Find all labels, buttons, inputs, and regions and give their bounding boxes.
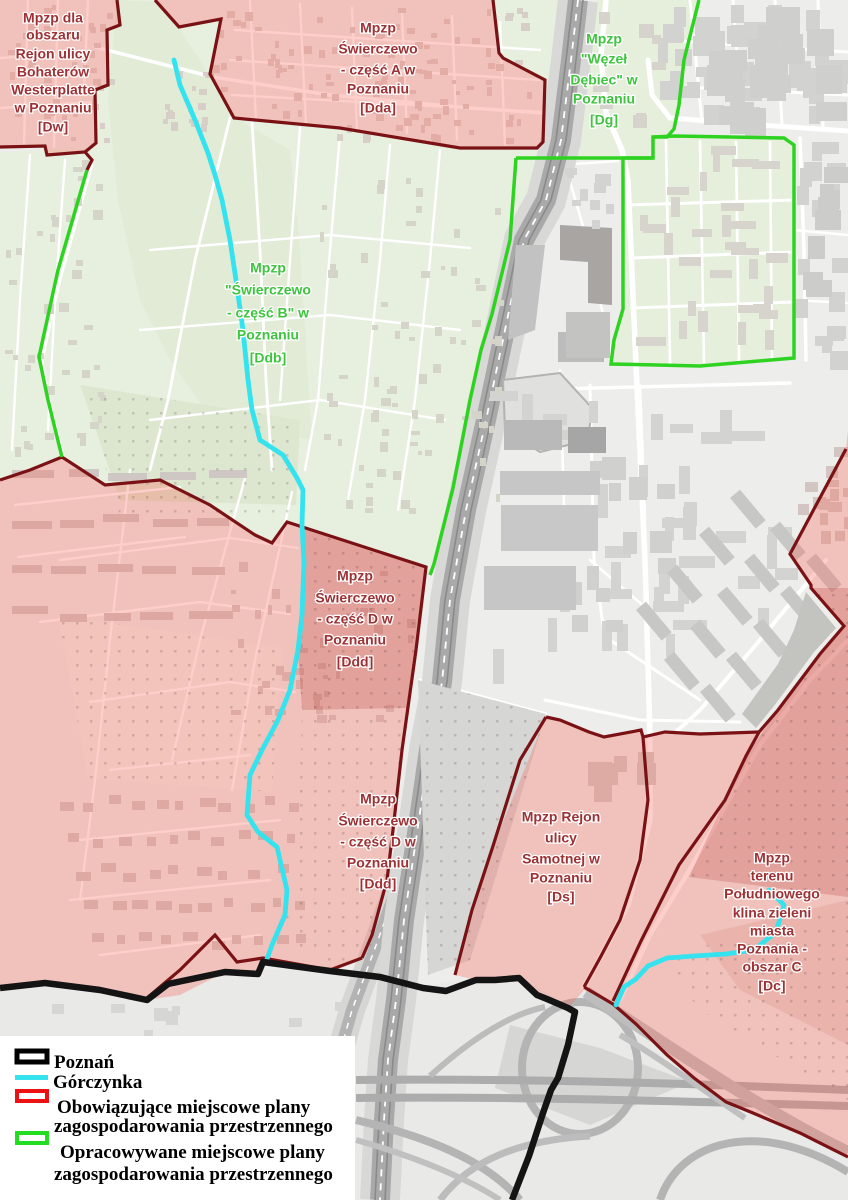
svg-text:[Dw]: [Dw] bbox=[38, 119, 68, 135]
svg-text:Mpzp dla: Mpzp dla bbox=[23, 10, 83, 26]
svg-text:[Ds]: [Ds] bbox=[547, 889, 574, 905]
svg-text:obszar C: obszar C bbox=[742, 959, 801, 975]
svg-text:[Ddb]: [Ddb] bbox=[250, 350, 287, 366]
svg-text:Świerczewo: Świerczewo bbox=[315, 589, 394, 606]
svg-text:Poznaniu: Poznaniu bbox=[237, 327, 299, 343]
svg-text:terenu: terenu bbox=[751, 868, 794, 884]
svg-text:Samotnej w: Samotnej w bbox=[522, 851, 600, 867]
svg-text:obszaru: obszaru bbox=[26, 27, 80, 43]
svg-text:Poznaniu: Poznaniu bbox=[347, 855, 409, 871]
svg-text:- część D w: - część D w bbox=[317, 611, 393, 627]
svg-text:Świerczewo: Świerczewo bbox=[338, 40, 417, 57]
svg-text:"Świerczewo: "Świerczewo bbox=[225, 281, 311, 298]
svg-text:"Węzeł: "Węzeł bbox=[581, 51, 627, 67]
svg-text:Mpzp: Mpzp bbox=[337, 568, 373, 584]
svg-text:Poznań: Poznań bbox=[54, 1052, 115, 1073]
svg-text:- część B" w: - część B" w bbox=[227, 305, 309, 321]
svg-text:Opracowywane miejscowe plany: Opracowywane miejscowe plany bbox=[60, 1142, 325, 1163]
svg-text:Rejon ulicy: Rejon ulicy bbox=[16, 46, 91, 62]
svg-text:ulicy: ulicy bbox=[545, 830, 577, 846]
svg-text:[Dg]: [Dg] bbox=[590, 112, 618, 128]
svg-text:klina zieleni: klina zieleni bbox=[733, 905, 812, 921]
svg-text:Dębiec" w: Dębiec" w bbox=[570, 72, 637, 88]
svg-text:Mpzp: Mpzp bbox=[360, 20, 396, 36]
svg-text:Poznaniu: Poznaniu bbox=[324, 632, 386, 648]
svg-text:Bohaterów: Bohaterów bbox=[17, 64, 89, 80]
svg-text:Mpzp: Mpzp bbox=[754, 850, 790, 866]
svg-text:zagospodarowania przestrzenneg: zagospodarowania przestrzennego bbox=[54, 1164, 333, 1185]
svg-text:w Poznaniu: w Poznaniu bbox=[14, 100, 92, 116]
svg-text:Westerplatte: Westerplatte bbox=[11, 82, 95, 98]
svg-text:Poznania -: Poznania - bbox=[737, 941, 807, 957]
svg-text:Poznaniu: Poznaniu bbox=[530, 870, 592, 886]
svg-text:- część D w: - część D w bbox=[340, 834, 416, 850]
svg-text:Południowego: Południowego bbox=[724, 886, 820, 902]
svg-text:Mpzp: Mpzp bbox=[586, 31, 622, 47]
svg-text:[Dc]: [Dc] bbox=[758, 978, 785, 994]
svg-text:Mpzp: Mpzp bbox=[250, 260, 286, 276]
svg-text:Górczynka: Górczynka bbox=[53, 1072, 143, 1093]
svg-text:miasta: miasta bbox=[750, 923, 795, 939]
svg-text:Mpzp Rejon: Mpzp Rejon bbox=[522, 809, 601, 825]
svg-text:Poznaniu: Poznaniu bbox=[573, 91, 635, 107]
svg-text:[Ddd]: [Ddd] bbox=[337, 654, 374, 670]
svg-text:- część A w: - część A w bbox=[341, 62, 416, 78]
svg-text:[Ddd]: [Ddd] bbox=[360, 876, 397, 892]
svg-text:Mpzp: Mpzp bbox=[360, 791, 396, 807]
svg-text:Poznaniu: Poznaniu bbox=[347, 81, 409, 97]
svg-text:Obowiązujące miejscowe plany: Obowiązujące miejscowe plany bbox=[57, 1097, 311, 1118]
svg-text:zagospodarowania przestrzenneg: zagospodarowania przestrzennego bbox=[54, 1116, 333, 1137]
svg-text:Świerczewo: Świerczewo bbox=[338, 812, 417, 829]
svg-text:[Dda]: [Dda] bbox=[360, 100, 396, 116]
